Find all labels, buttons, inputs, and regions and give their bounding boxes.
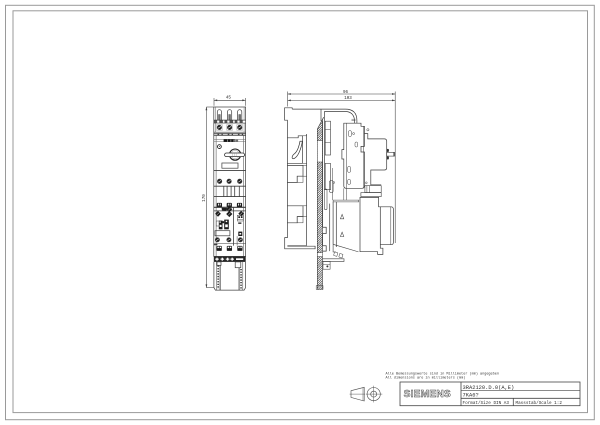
svg-text:Massstab/Scale 1:2: Massstab/Scale 1:2 (516, 401, 563, 406)
svg-text:96: 96 (343, 91, 349, 95)
svg-text:7KA6?: 7KA6? (463, 393, 479, 399)
svg-text:Format/Size DIN A3: Format/Size DIN A3 (463, 401, 510, 406)
svg-text:170: 170 (202, 194, 207, 202)
svg-text:103: 103 (344, 97, 352, 101)
svg-text:3RA2120.D.0(A,E): 3RA2120.D.0(A,E) (463, 385, 515, 391)
svg-text:SIEMENS: SIEMENS (404, 389, 451, 400)
svg-text:All dimensions are in millimet: All dimensions are in millimeters (mm) (386, 376, 466, 381)
svg-text:45: 45 (226, 95, 232, 100)
